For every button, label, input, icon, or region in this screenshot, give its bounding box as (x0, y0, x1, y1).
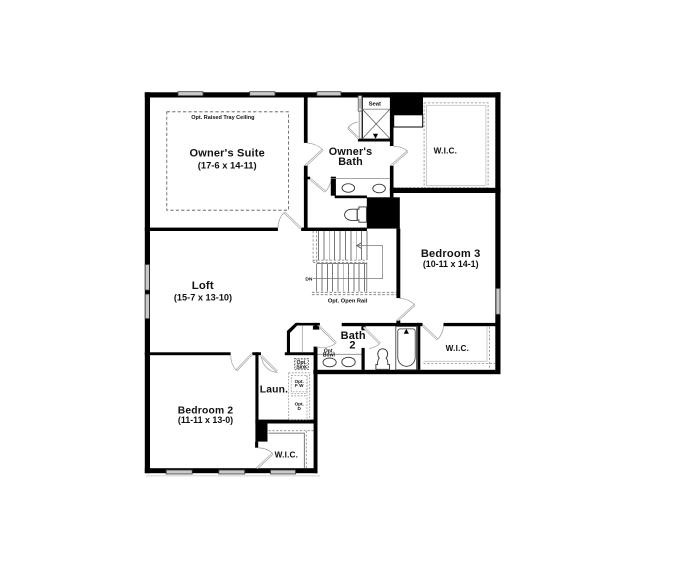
svg-text:F W: F W (295, 383, 304, 388)
svg-text:Seat: Seat (369, 102, 381, 108)
svg-text:W.I.C.: W.I.C. (434, 147, 458, 156)
svg-text:Owner's Suite: Owner's Suite (189, 148, 265, 160)
svg-text:Bowl: Bowl (323, 353, 336, 359)
svg-text:Bath: Bath (338, 156, 363, 168)
svg-text:Laun.: Laun. (260, 384, 288, 395)
svg-text:(15-7 x 13-10): (15-7 x 13-10) (174, 292, 232, 302)
svg-text:Sink: Sink (296, 365, 307, 371)
svg-text:Loft: Loft (192, 280, 214, 292)
svg-text:(10-11 x 14-1): (10-11 x 14-1) (423, 259, 479, 269)
svg-text:Opt. Open Rail: Opt. Open Rail (328, 299, 368, 305)
svg-text:W.I.C.: W.I.C. (275, 451, 299, 460)
svg-text:2: 2 (349, 340, 355, 352)
svg-text:DN: DN (305, 276, 313, 282)
svg-text:(11-11 x 13-0): (11-11 x 13-0) (178, 415, 233, 425)
svg-text:W.I.C.: W.I.C. (446, 344, 470, 353)
svg-text:Opt. Raised Tray Ceiling: Opt. Raised Tray Ceiling (191, 115, 254, 121)
svg-text:(17-6 x 14-11): (17-6 x 14-11) (198, 160, 257, 171)
